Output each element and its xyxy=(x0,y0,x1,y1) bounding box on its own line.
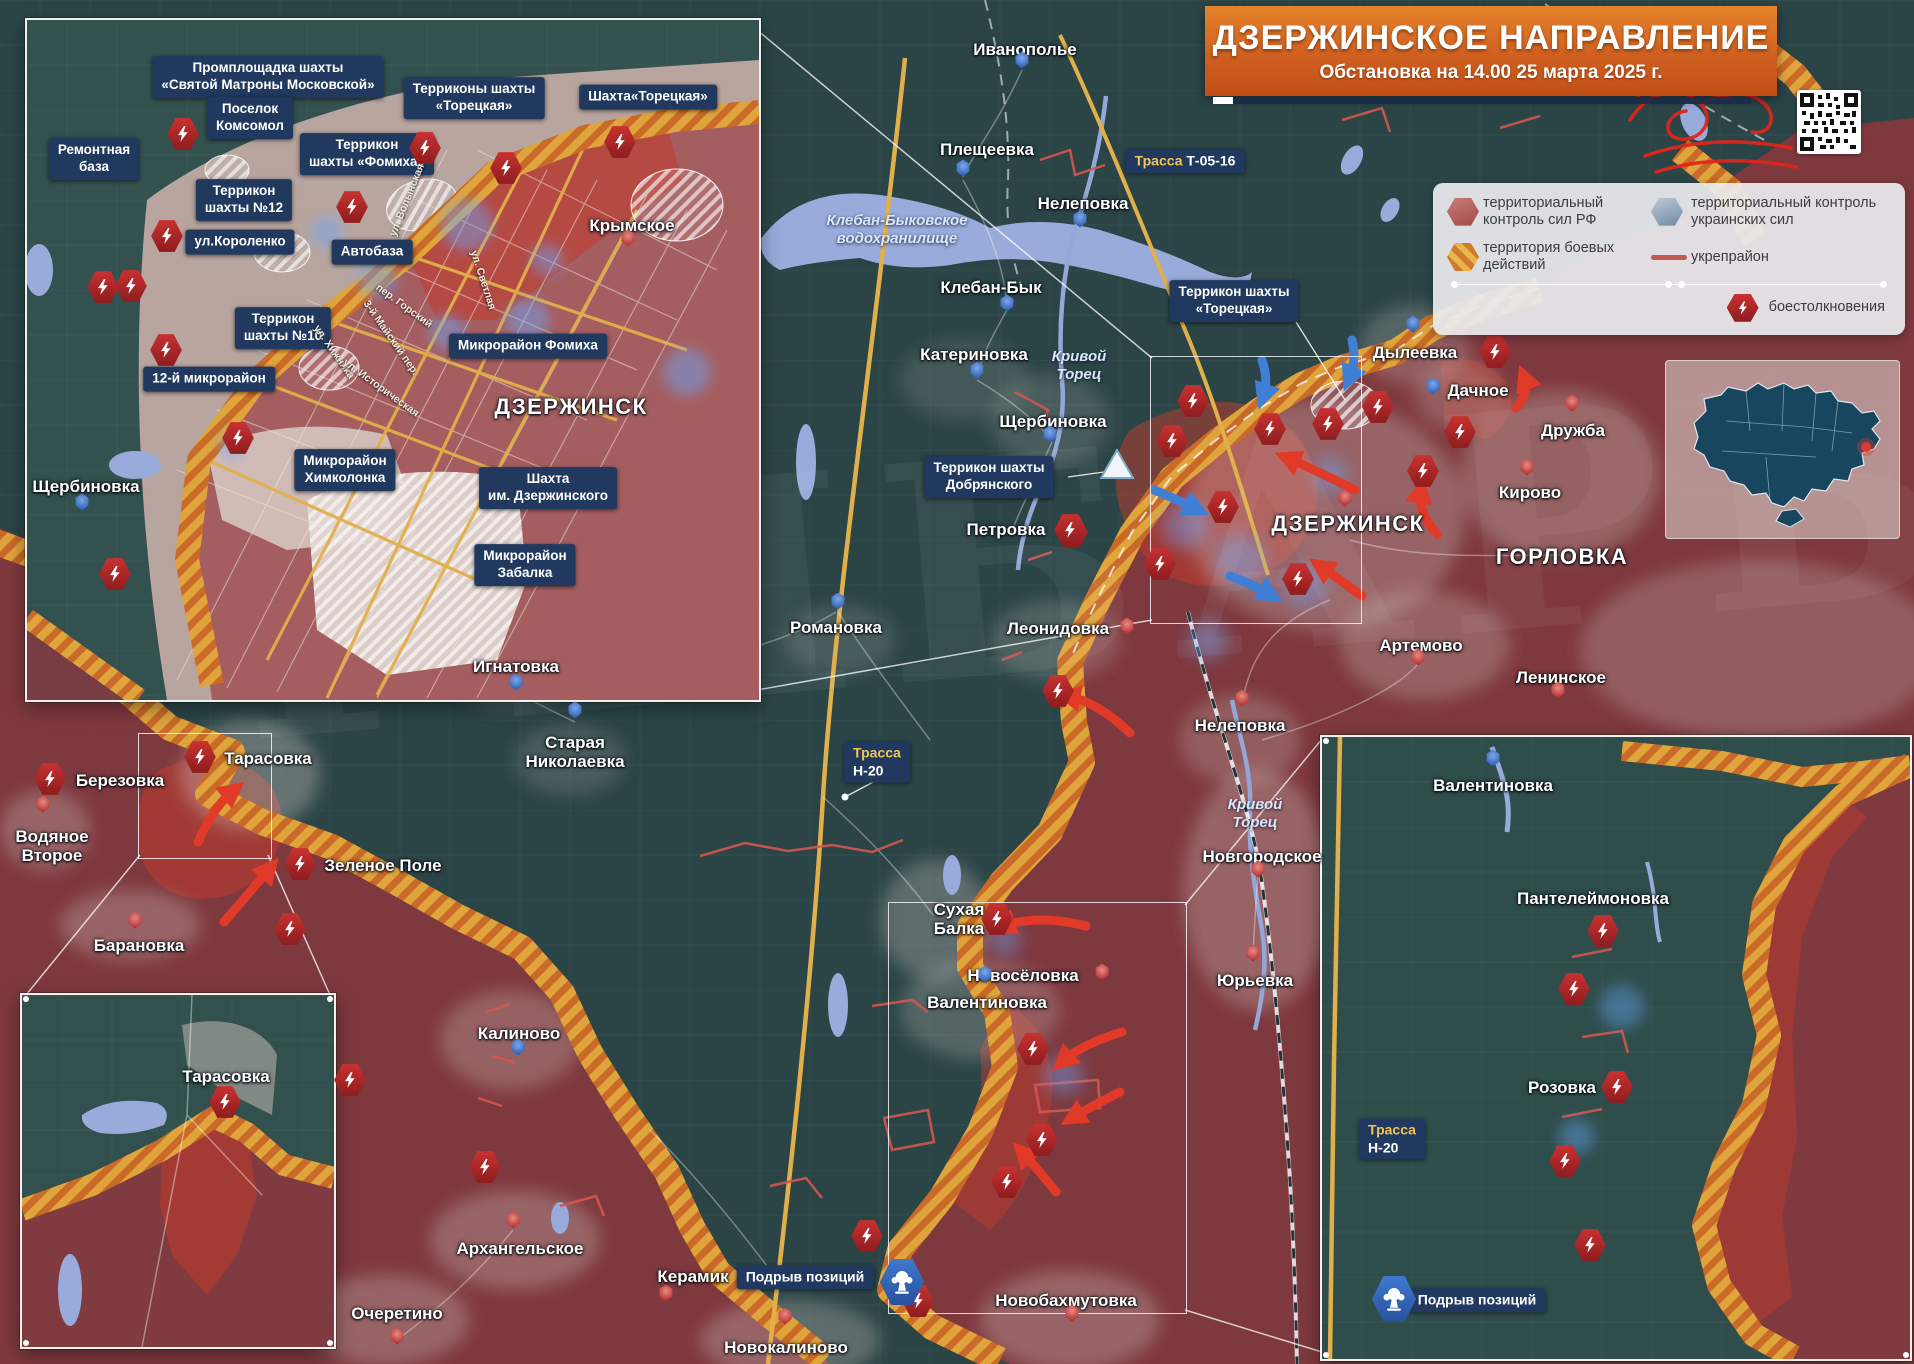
town-label: Игнатовка xyxy=(473,657,559,676)
town-label: Юрьевка xyxy=(1217,971,1293,990)
clash-icon xyxy=(1042,675,1075,708)
town-label: Барановка xyxy=(94,936,185,955)
callout-label: Поселок Комсомол xyxy=(207,97,293,139)
village-marker-ua xyxy=(970,362,985,379)
town-label: Сухая Балка xyxy=(934,900,985,938)
town-label: Леонидовка xyxy=(1007,619,1109,638)
clash-icon xyxy=(1558,973,1591,1006)
legend-fort-icon xyxy=(1651,255,1687,260)
village-marker-ua xyxy=(568,702,583,719)
clash-icon xyxy=(184,741,217,774)
village-marker-ua xyxy=(1486,750,1501,767)
town-label: Валентиновка xyxy=(927,993,1047,1012)
road-badge: ТрассаН-20 xyxy=(844,742,910,783)
town-label: Романовка xyxy=(790,618,882,637)
ukraine-locator xyxy=(1665,360,1900,539)
clash-icon xyxy=(1017,1033,1050,1066)
callout-label: Террикон шахты №12 xyxy=(196,179,292,221)
village-marker-rf xyxy=(506,1212,521,1229)
demolition-badge: Подрыв позиций xyxy=(1409,1288,1546,1312)
village-marker-ua xyxy=(831,593,846,610)
legend: территориальный контроль сил РФ территор… xyxy=(1433,183,1905,335)
clash-icon xyxy=(209,1086,242,1119)
callout-label: ул.Короленко xyxy=(185,230,294,255)
legend-clash-label: боестолкновения xyxy=(1769,299,1885,316)
clash-icon xyxy=(1549,1145,1582,1178)
clash-icon xyxy=(1026,1124,1059,1157)
clash-icon xyxy=(87,271,120,304)
town-label: Новокалиново xyxy=(724,1338,848,1357)
callout-label: Промплощадка шахты «Святой Матроны Моско… xyxy=(152,56,383,98)
clash-icon xyxy=(34,763,67,796)
callout-label: Автобаза xyxy=(332,240,413,265)
legend-ua-label: территориальный контроль украинских сил xyxy=(1691,195,1891,228)
road-badge-prefix: Трасса xyxy=(853,745,901,761)
callout-label: Шахта им. Дзержинского xyxy=(479,467,617,509)
town-label: Кирово xyxy=(1499,483,1561,502)
water-label: Кривой Торец xyxy=(1052,348,1107,384)
callout-label: 12-й микрорайон xyxy=(143,367,275,392)
clash-icon xyxy=(151,220,184,253)
callout-label: Микрорайон Забалка xyxy=(474,544,575,586)
town-label: ДЗЕРЖИНСК xyxy=(494,395,647,420)
clash-icon xyxy=(115,270,148,303)
town-label: Щербиновка xyxy=(32,477,139,496)
town-label: Березовка xyxy=(76,771,164,790)
callout-label: Шахта«Торецкая» xyxy=(579,85,717,110)
qr-code xyxy=(1797,90,1861,154)
clash-icon xyxy=(991,1166,1024,1199)
town-label: Дылеевка xyxy=(1373,343,1458,362)
town-label: Тарасовка xyxy=(182,1067,270,1086)
road-badge-prefix: Трасса xyxy=(1135,152,1183,168)
village-marker-rf xyxy=(778,1308,793,1325)
road-badge-number: Н-20 xyxy=(853,762,883,778)
town-label: ДЗЕРЖИНСК xyxy=(1271,512,1424,537)
clash-icon xyxy=(1254,413,1287,446)
callout-label: Террикон шахты «Торецкая» xyxy=(1169,280,1298,322)
callout-label: Микрорайон Химколонка xyxy=(294,449,395,491)
town-label: Архангельское xyxy=(457,1239,584,1258)
clash-icon xyxy=(1574,1229,1607,1262)
village-marker-rf xyxy=(1095,964,1110,981)
clash-icon xyxy=(1282,563,1315,596)
village-marker-rf xyxy=(36,796,51,813)
clash-icon xyxy=(851,1220,884,1253)
village-marker-ua xyxy=(1000,295,1015,312)
clash-icon xyxy=(150,334,183,367)
title-banner: ДЗЕРЖИНСКОЕ НАПРАВЛЕНИЕ Обстановка на 14… xyxy=(1205,6,1777,96)
clash-icon xyxy=(1479,336,1512,369)
village-marker-rf xyxy=(1246,945,1261,962)
clash-icon xyxy=(274,913,307,946)
clash-icon xyxy=(222,422,255,455)
legend-rf-icon xyxy=(1447,198,1479,226)
clash-icon xyxy=(334,1064,367,1097)
clash-icon xyxy=(1177,385,1210,418)
street-label: ул. Светлая xyxy=(468,249,498,311)
legend-clash-icon xyxy=(1727,294,1759,322)
town-label: Водяное Второе xyxy=(15,827,88,865)
town-label: Старая Николаевка xyxy=(525,733,624,771)
town-label: Плещеевка xyxy=(940,140,1034,159)
legend-divider xyxy=(1451,284,1887,285)
town-label: Очеретино xyxy=(351,1304,443,1323)
town-label: Нелеповка xyxy=(1038,194,1129,213)
road-badge: ТрассаН-20 xyxy=(1359,1119,1425,1160)
clash-icon xyxy=(99,558,132,591)
town-label: Керамик xyxy=(657,1267,728,1286)
town-label: Розовка xyxy=(1528,1078,1596,1097)
village-marker-rf xyxy=(1565,395,1580,412)
road-badge-prefix: Трасса xyxy=(1368,1122,1416,1138)
village-marker-ua xyxy=(956,160,971,177)
road-badge-number: Н-20 xyxy=(1368,1139,1398,1155)
legend-ua-icon xyxy=(1651,198,1683,226)
road-badge-number: Т-05-16 xyxy=(1186,152,1235,168)
village-marker-rf xyxy=(1338,490,1353,507)
clash-icon xyxy=(604,126,637,159)
town-label: Валентиновка xyxy=(1433,776,1553,795)
village-marker-ua xyxy=(1073,211,1088,228)
clash-icon xyxy=(1601,1071,1634,1104)
town-label: Дружба xyxy=(1541,421,1605,440)
town-label: ГОРЛОВКА xyxy=(1496,545,1628,570)
water-label: Клебан-Быковское водохранилище xyxy=(827,212,968,248)
clash-icon xyxy=(1587,915,1620,948)
clash-icon xyxy=(336,191,369,224)
village-marker-rf xyxy=(1235,690,1250,707)
clash-icon xyxy=(981,903,1014,936)
town-label: Клебан-Бык xyxy=(940,278,1041,297)
demolition-badge: Подрыв позиций xyxy=(737,1265,874,1289)
clash-icon xyxy=(167,118,200,151)
water-label: Кривой Торец xyxy=(1228,796,1283,832)
ukraine-map xyxy=(1666,361,1899,538)
clash-icon xyxy=(1156,425,1189,458)
clash-icon xyxy=(1207,491,1240,524)
map-title: ДЗЕРЖИНСКОЕ НАПРАВЛЕНИЕ xyxy=(1213,19,1770,58)
village-marker-rf xyxy=(1120,618,1135,635)
village-marker-ua xyxy=(1426,378,1441,395)
village-marker-rf xyxy=(659,1285,674,1302)
clash-icon xyxy=(1362,391,1395,424)
callout-label: Террикон шахты Добрянского xyxy=(924,456,1053,498)
town-label: Пантелеймоновка xyxy=(1517,889,1669,908)
town-label: Катериновка xyxy=(920,345,1028,364)
clash-icon xyxy=(1407,455,1440,488)
town-label: Петровка xyxy=(967,520,1046,539)
village-marker-ua xyxy=(1406,316,1421,333)
map-stage: РЫБАРЬ xyxy=(0,0,1914,1364)
legend-combat-icon xyxy=(1447,243,1479,271)
explosion-icon xyxy=(1371,1275,1417,1323)
clash-icon xyxy=(284,848,317,881)
legend-rf-label: территориальный контроль сил РФ xyxy=(1483,195,1651,228)
village-marker-ua xyxy=(75,494,90,511)
village-marker-rf xyxy=(1520,459,1535,476)
town-label: Дачное xyxy=(1447,381,1508,400)
town-label: Тарасовка xyxy=(224,749,312,768)
map-subtitle: Обстановка на 14.00 25 марта 2025 г. xyxy=(1319,62,1662,84)
clash-icon xyxy=(1144,548,1177,581)
village-marker-rf xyxy=(390,1328,405,1345)
legend-fort-label: укрепрайон xyxy=(1691,249,1891,266)
clash-icon xyxy=(490,152,523,185)
legend-combat-label: территория боевых действий xyxy=(1483,240,1651,273)
clash-icon xyxy=(1312,408,1345,441)
road-badge: Трасса Т-05-16 xyxy=(1126,149,1245,173)
callout-label: Терриконы шахты «Торецкая» xyxy=(404,77,545,119)
town-label: Зеленое Поле xyxy=(324,856,441,875)
town-label: Новобахмутовка xyxy=(995,1291,1137,1310)
town-label: Нелеповка xyxy=(1195,716,1286,735)
clash-icon xyxy=(469,1151,502,1184)
clash-icon xyxy=(1444,416,1477,449)
callout-label: Микрорайон Фомиха xyxy=(449,334,607,359)
village-marker-ua xyxy=(509,674,524,691)
village-marker-rf xyxy=(128,912,143,929)
callout-label: Ремонтная база xyxy=(49,138,139,180)
